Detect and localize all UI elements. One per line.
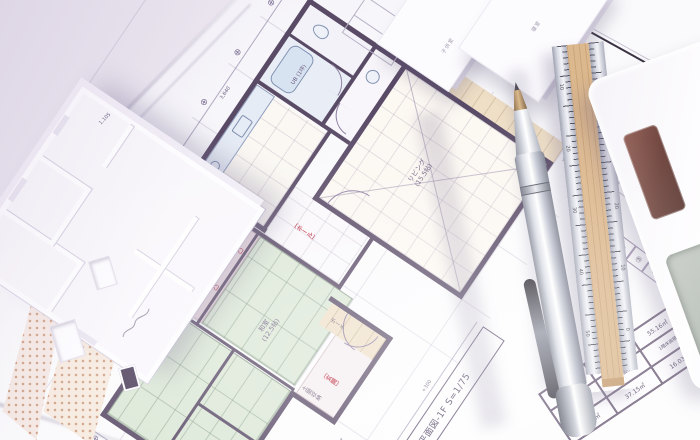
model-inner-wall [48,186,91,247]
model-inner-wall [47,260,85,313]
model-inner-wall [127,216,198,318]
model-inner-wall [102,124,134,168]
pen-end-cap [554,382,599,440]
model-inner-wall [39,156,92,194]
block-label: 子供室 [440,36,456,55]
photo-scene: 1,105 [0,0,700,440]
drawing-title: 平面図-1F S=1/75 [415,370,473,440]
circled-number: ③ [633,254,644,265]
ruler-number: 20 [613,202,620,209]
block-label: 寝室 [530,19,543,33]
ruler-number: 0 [624,327,630,331]
ruler-number: 10 [619,264,626,271]
pen-cone [508,107,542,157]
solar-panel [622,124,687,221]
